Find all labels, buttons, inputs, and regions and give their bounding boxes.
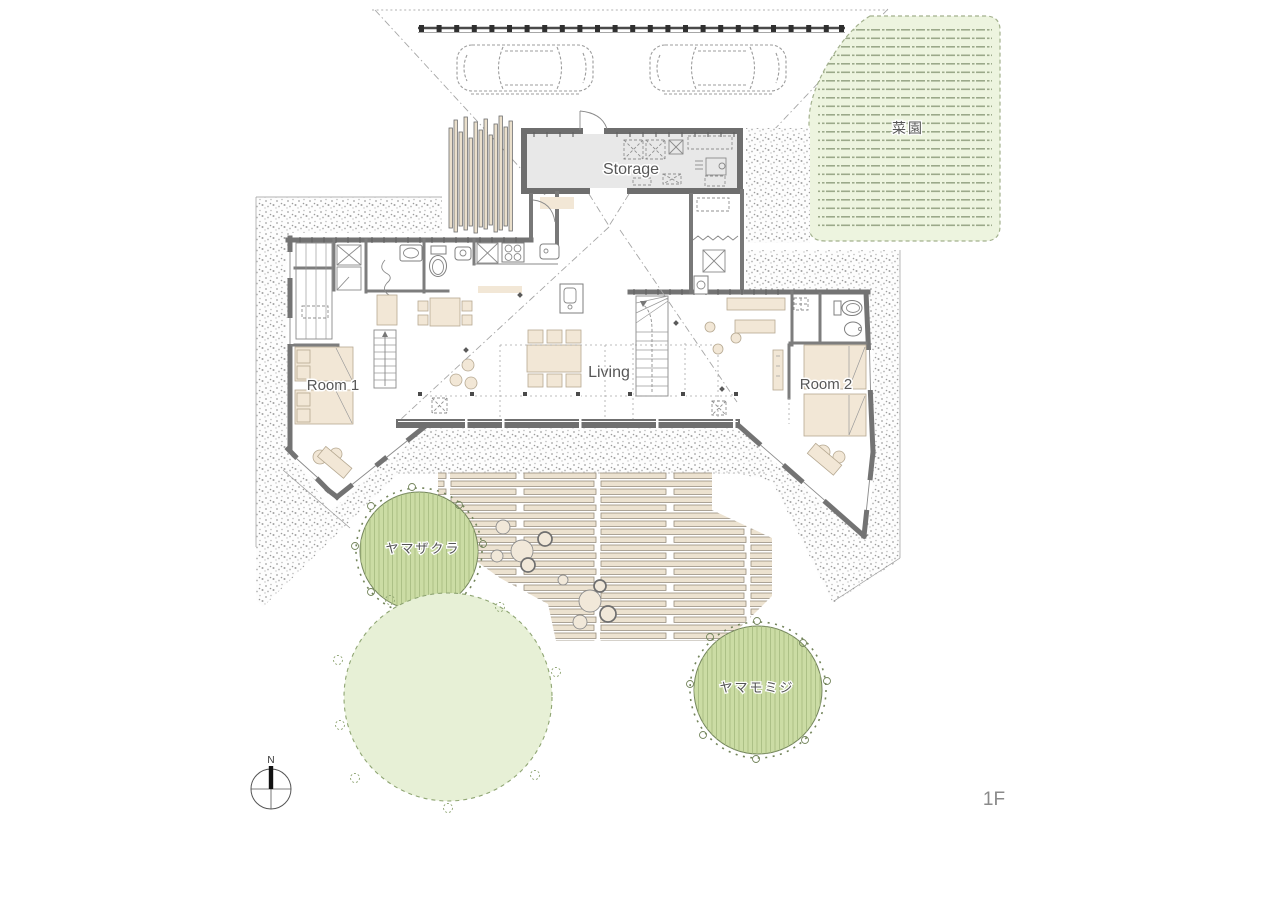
storage-label: Storage bbox=[603, 161, 659, 178]
tree-yamazakura-label: ヤマザクラ bbox=[385, 541, 460, 556]
floor-label: 1F bbox=[983, 789, 1005, 810]
room-2-label: Room 2 bbox=[800, 376, 853, 393]
dining-table bbox=[527, 330, 581, 387]
room-1-label: Room 1 bbox=[307, 377, 360, 394]
cabinet bbox=[377, 295, 397, 325]
compass-north-label: N bbox=[267, 755, 274, 766]
floor-plan-drawing: 菜園 bbox=[0, 0, 1280, 904]
tree-yamamomiji-label: ヤマモミジ bbox=[719, 680, 794, 695]
vegetable-garden: 菜園 bbox=[809, 16, 1000, 241]
floor-plan-page: 菜園 bbox=[0, 0, 1280, 904]
deck-edge bbox=[396, 419, 740, 428]
living-label: Living bbox=[588, 364, 630, 381]
vegetable-garden-label: 菜園 bbox=[892, 120, 924, 136]
